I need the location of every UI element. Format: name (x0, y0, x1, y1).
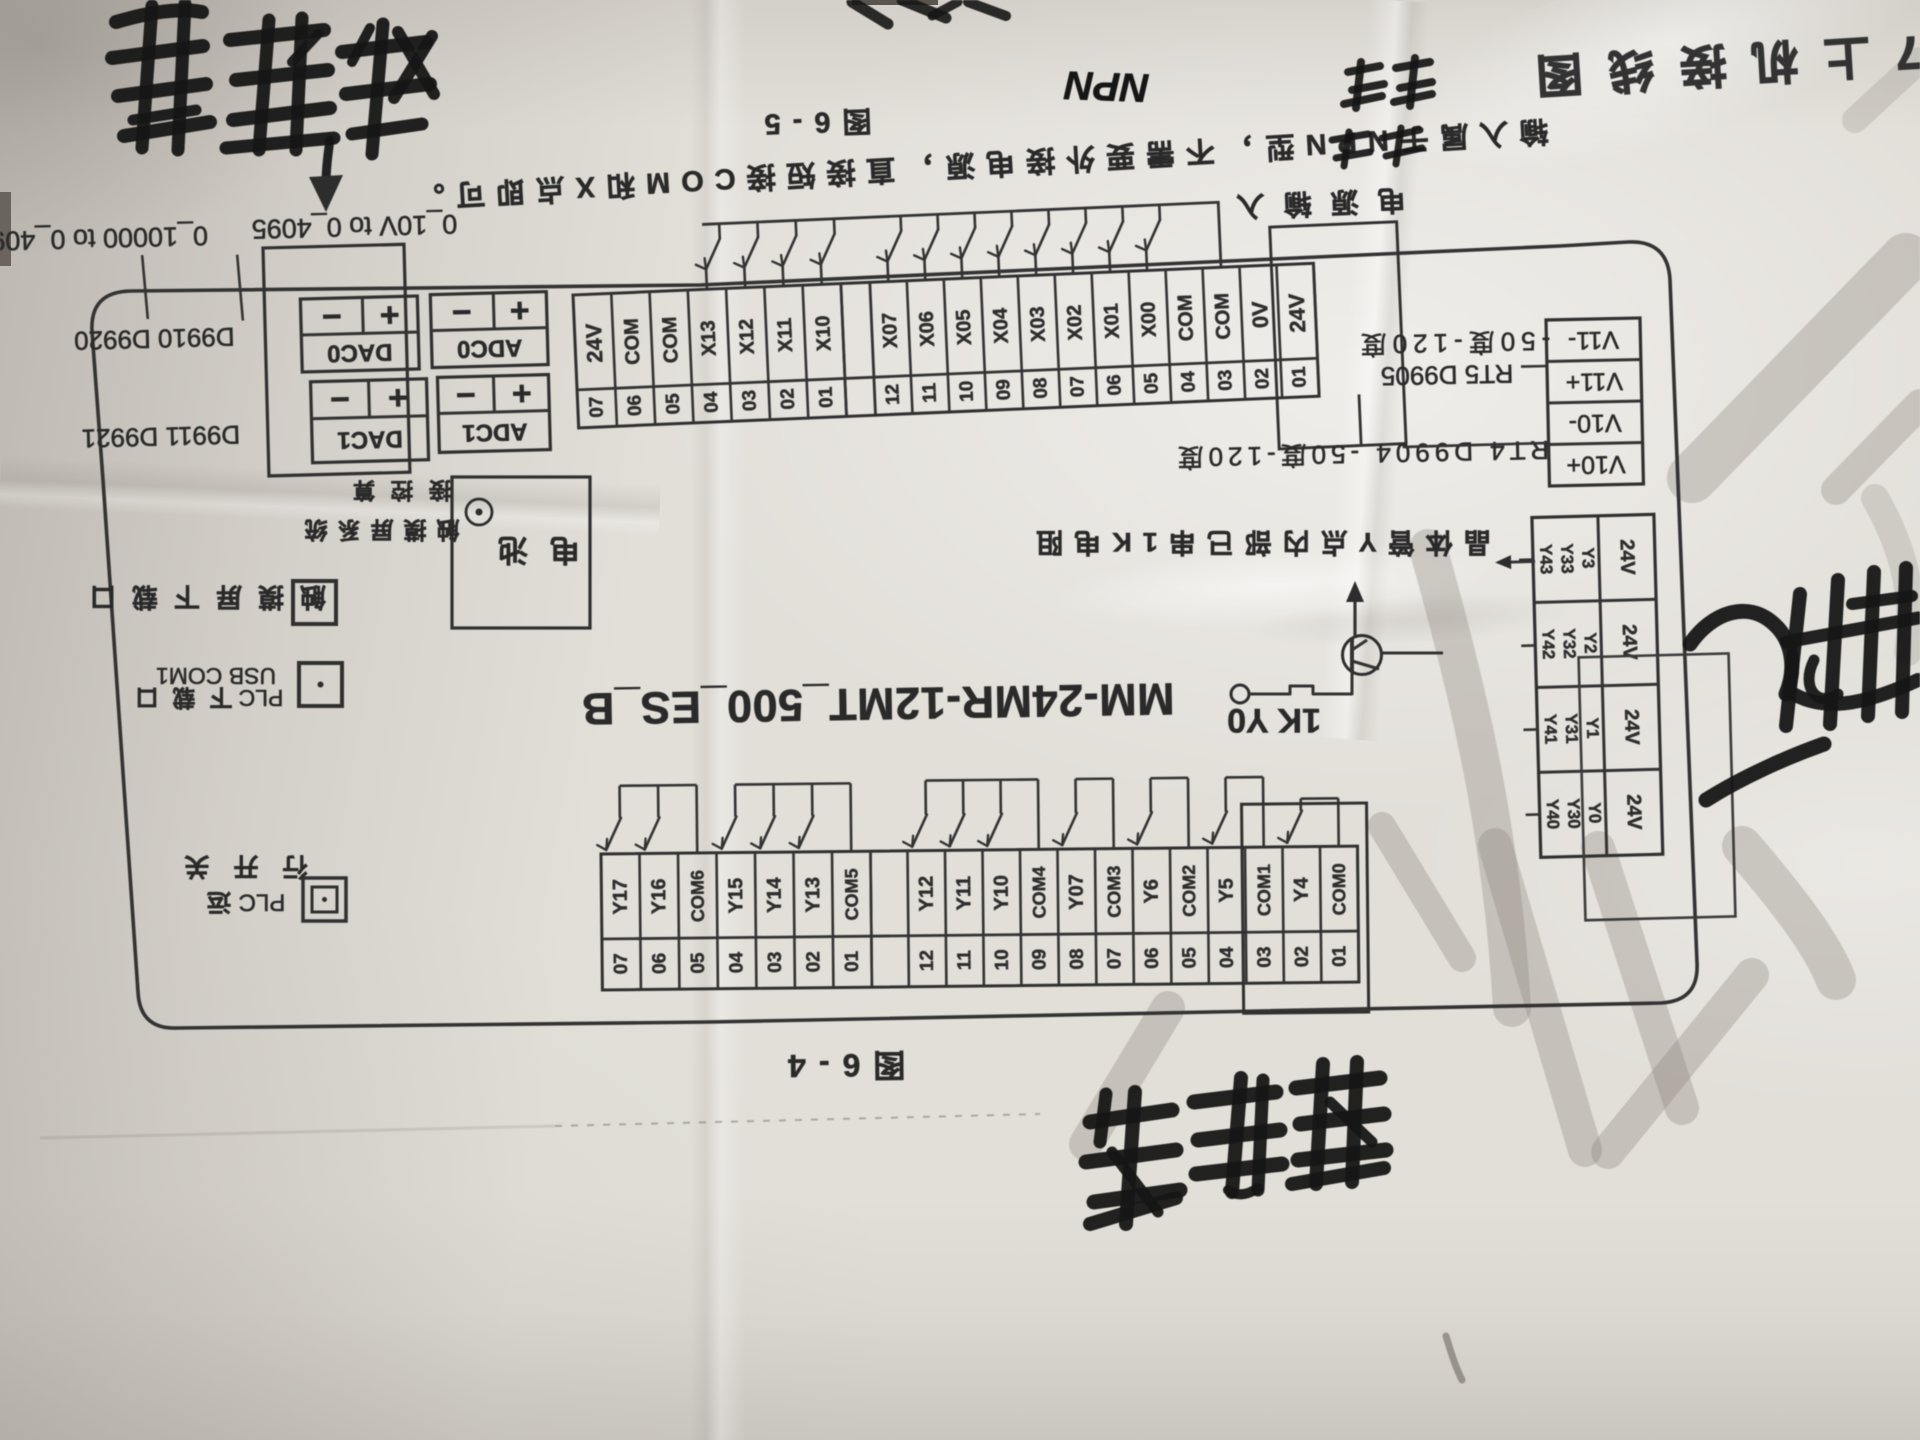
svg-text:24V: 24V (1620, 709, 1643, 746)
svg-text:11: 11 (954, 950, 975, 971)
svg-text:Y14: Y14 (763, 876, 785, 913)
svg-text:24V: 24V (1616, 539, 1639, 576)
svg-text:V10-: V10- (1568, 408, 1621, 437)
svg-text:−: − (451, 293, 472, 332)
svg-text:Y33: Y33 (1557, 543, 1577, 574)
svg-text:03: 03 (1254, 946, 1275, 967)
svg-text:COM4: COM4 (1029, 866, 1050, 918)
svg-text:X06: X06 (916, 311, 940, 348)
svg-text:03: 03 (1215, 369, 1237, 391)
svg-text:Y10: Y10 (990, 875, 1012, 911)
svg-text:−: − (330, 380, 351, 419)
svg-text:10: 10 (956, 380, 978, 402)
svg-text:COM: COM (1211, 292, 1235, 340)
svg-text:05: 05 (688, 952, 709, 974)
svg-text:07: 07 (1067, 375, 1089, 397)
svg-text:−: − (455, 375, 476, 414)
svg-text:COM: COM (1174, 294, 1198, 342)
svg-text:09: 09 (993, 379, 1015, 401)
svg-text:PLC: PLC (239, 889, 286, 916)
svg-text:24V: 24V (1622, 794, 1645, 831)
svg-text:X03: X03 (1027, 306, 1051, 343)
svg-text:06: 06 (624, 394, 646, 416)
svg-text:X10: X10 (812, 315, 836, 352)
svg-text:Y07: Y07 (1065, 874, 1087, 910)
svg-text:Y31: Y31 (1562, 713, 1582, 744)
svg-text:0_10000 to 0_4095: 0_10000 to 0_4095 (0, 220, 208, 256)
svg-text:Y43: Y43 (1536, 544, 1556, 575)
svg-text:01: 01 (816, 386, 838, 408)
svg-text:7上机接线图: 7上机接线图 (1509, 26, 1920, 103)
svg-text:V11-: V11- (1568, 325, 1620, 354)
svg-text:+: + (388, 378, 409, 417)
svg-text:09: 09 (1029, 949, 1050, 970)
svg-text:COM3: COM3 (1104, 866, 1125, 918)
svg-text:COM0: COM0 (1329, 863, 1350, 915)
svg-text:行开关: 行开关 (160, 852, 308, 880)
svg-text:07: 07 (611, 953, 632, 974)
svg-text:DAC1: DAC1 (337, 425, 403, 454)
svg-text:Y1: Y1 (1583, 717, 1603, 738)
svg-text:ADC1: ADC1 (462, 418, 528, 447)
svg-text:X04: X04 (990, 307, 1014, 344)
svg-text:06: 06 (1142, 948, 1163, 969)
svg-text:12: 12 (882, 383, 904, 405)
svg-text:01: 01 (1329, 945, 1350, 967)
svg-text:X13: X13 (697, 320, 721, 357)
svg-text:05: 05 (1179, 947, 1200, 969)
svg-text:+: + (511, 374, 532, 413)
svg-text:11: 11 (919, 382, 941, 403)
svg-text:Y13: Y13 (802, 877, 824, 913)
svg-text:Y6: Y6 (1141, 879, 1163, 904)
svg-text:触摸屏系统: 触摸屏系统 (295, 517, 460, 543)
svg-text:X00: X00 (1137, 301, 1161, 338)
svg-text:下载口: 下载口 (122, 685, 233, 711)
svg-text:MM-24MR-12MT_500_ES_B: MM-24MR-12MT_500_ES_B (581, 673, 1175, 734)
svg-text:D9911 D9921: D9911 D9921 (81, 420, 240, 454)
svg-text:D9910 D9920: D9910 D9920 (74, 322, 235, 356)
svg-text:DAC0: DAC0 (327, 338, 393, 367)
svg-text:X01: X01 (1100, 303, 1124, 340)
svg-text:X12: X12 (736, 318, 760, 355)
svg-text:−: − (321, 297, 342, 336)
svg-text:0V: 0V (1247, 300, 1273, 328)
svg-text:V11+: V11+ (1565, 367, 1623, 396)
svg-text:图6-4: 图6-4 (775, 1047, 906, 1084)
svg-text:ADC0: ADC0 (457, 334, 523, 363)
svg-text:01: 01 (842, 950, 863, 972)
svg-text:04: 04 (701, 391, 723, 413)
svg-text:X07: X07 (879, 312, 903, 349)
svg-text:10: 10 (992, 949, 1013, 970)
svg-text:COM1: COM1 (1254, 864, 1275, 916)
svg-text:+: + (509, 291, 530, 330)
svg-text:12: 12 (917, 950, 938, 971)
svg-text:NPN: NPN (1063, 63, 1150, 110)
svg-text:PLC: PLC (239, 685, 284, 711)
svg-text:02: 02 (1292, 946, 1313, 967)
svg-text:06: 06 (1104, 374, 1126, 396)
svg-text:电池: 电池 (476, 533, 580, 566)
svg-text:04: 04 (1178, 370, 1200, 392)
svg-text:08: 08 (1067, 948, 1088, 969)
svg-text:0_10V to 0_4095: 0_10V to 0_4095 (251, 209, 457, 244)
svg-text:03: 03 (765, 952, 786, 973)
svg-text:08: 08 (1030, 377, 1052, 399)
svg-text:RT4 D9904 -50度-120度: RT4 D9904 -50度-120度 (1172, 435, 1549, 473)
svg-text:02: 02 (777, 388, 799, 410)
svg-text:触摸屏下载口: 触摸屏下载口 (74, 582, 326, 612)
svg-text:Y4: Y4 (1291, 876, 1313, 902)
svg-text:+: + (379, 295, 400, 334)
svg-text:24V: 24V (1284, 293, 1311, 334)
svg-text:Y3: Y3 (1578, 547, 1598, 568)
svg-text:Y30: Y30 (1564, 798, 1584, 829)
svg-text:晶体管Y点内部已串1K电阻: 晶体管Y点内部已串1K电阻 (1025, 527, 1491, 558)
svg-text:07: 07 (586, 396, 608, 418)
svg-text:06: 06 (649, 953, 670, 974)
svg-text:Y15: Y15 (725, 878, 747, 914)
svg-text:COM: COM (621, 318, 645, 366)
svg-text:运: 运 (207, 889, 231, 916)
svg-text:Y17: Y17 (610, 879, 632, 915)
svg-text:X11: X11 (774, 317, 797, 352)
svg-text:03: 03 (739, 390, 761, 412)
svg-text:COM5: COM5 (841, 868, 862, 920)
svg-text:接控算: 接控算 (337, 478, 451, 503)
svg-text:-50度-120度: -50度-120度 (1354, 326, 1550, 360)
svg-text:Y5: Y5 (1216, 878, 1238, 903)
svg-text:01: 01 (1289, 366, 1311, 388)
svg-text:图6-5: 图6-5 (752, 104, 872, 140)
svg-text:05: 05 (1141, 372, 1163, 394)
svg-text:Y0: Y0 (1585, 802, 1605, 823)
svg-text:COM6: COM6 (687, 870, 708, 922)
svg-text:X02: X02 (1063, 304, 1087, 341)
svg-text:Y12: Y12 (915, 876, 937, 912)
svg-text:COM2: COM2 (1179, 865, 1200, 917)
svg-text:04: 04 (1217, 946, 1238, 968)
svg-text:02: 02 (803, 951, 824, 972)
svg-text:24V: 24V (581, 323, 608, 364)
svg-text:COM: COM (659, 316, 683, 364)
svg-text:V10+: V10+ (1566, 450, 1626, 479)
svg-text:07: 07 (1104, 948, 1125, 969)
svg-text:Y32: Y32 (1559, 628, 1579, 659)
svg-text:RT5 D9905: RT5 D9905 (1381, 359, 1514, 392)
svg-text:Y16: Y16 (648, 878, 670, 914)
svg-text:1K Y0: 1K Y0 (1227, 701, 1321, 739)
svg-text:04: 04 (726, 951, 747, 973)
svg-text:05: 05 (663, 392, 685, 414)
svg-text:Y41: Y41 (1541, 714, 1561, 745)
svg-text:Y2: Y2 (1580, 632, 1600, 653)
svg-text:Y42: Y42 (1538, 629, 1558, 660)
svg-text:X05: X05 (953, 309, 977, 346)
svg-text:Y40: Y40 (1543, 799, 1563, 830)
svg-text:Y11: Y11 (953, 876, 975, 911)
svg-text:02: 02 (1252, 368, 1274, 390)
svg-text:电源输入: 电源输入 (1217, 184, 1406, 224)
